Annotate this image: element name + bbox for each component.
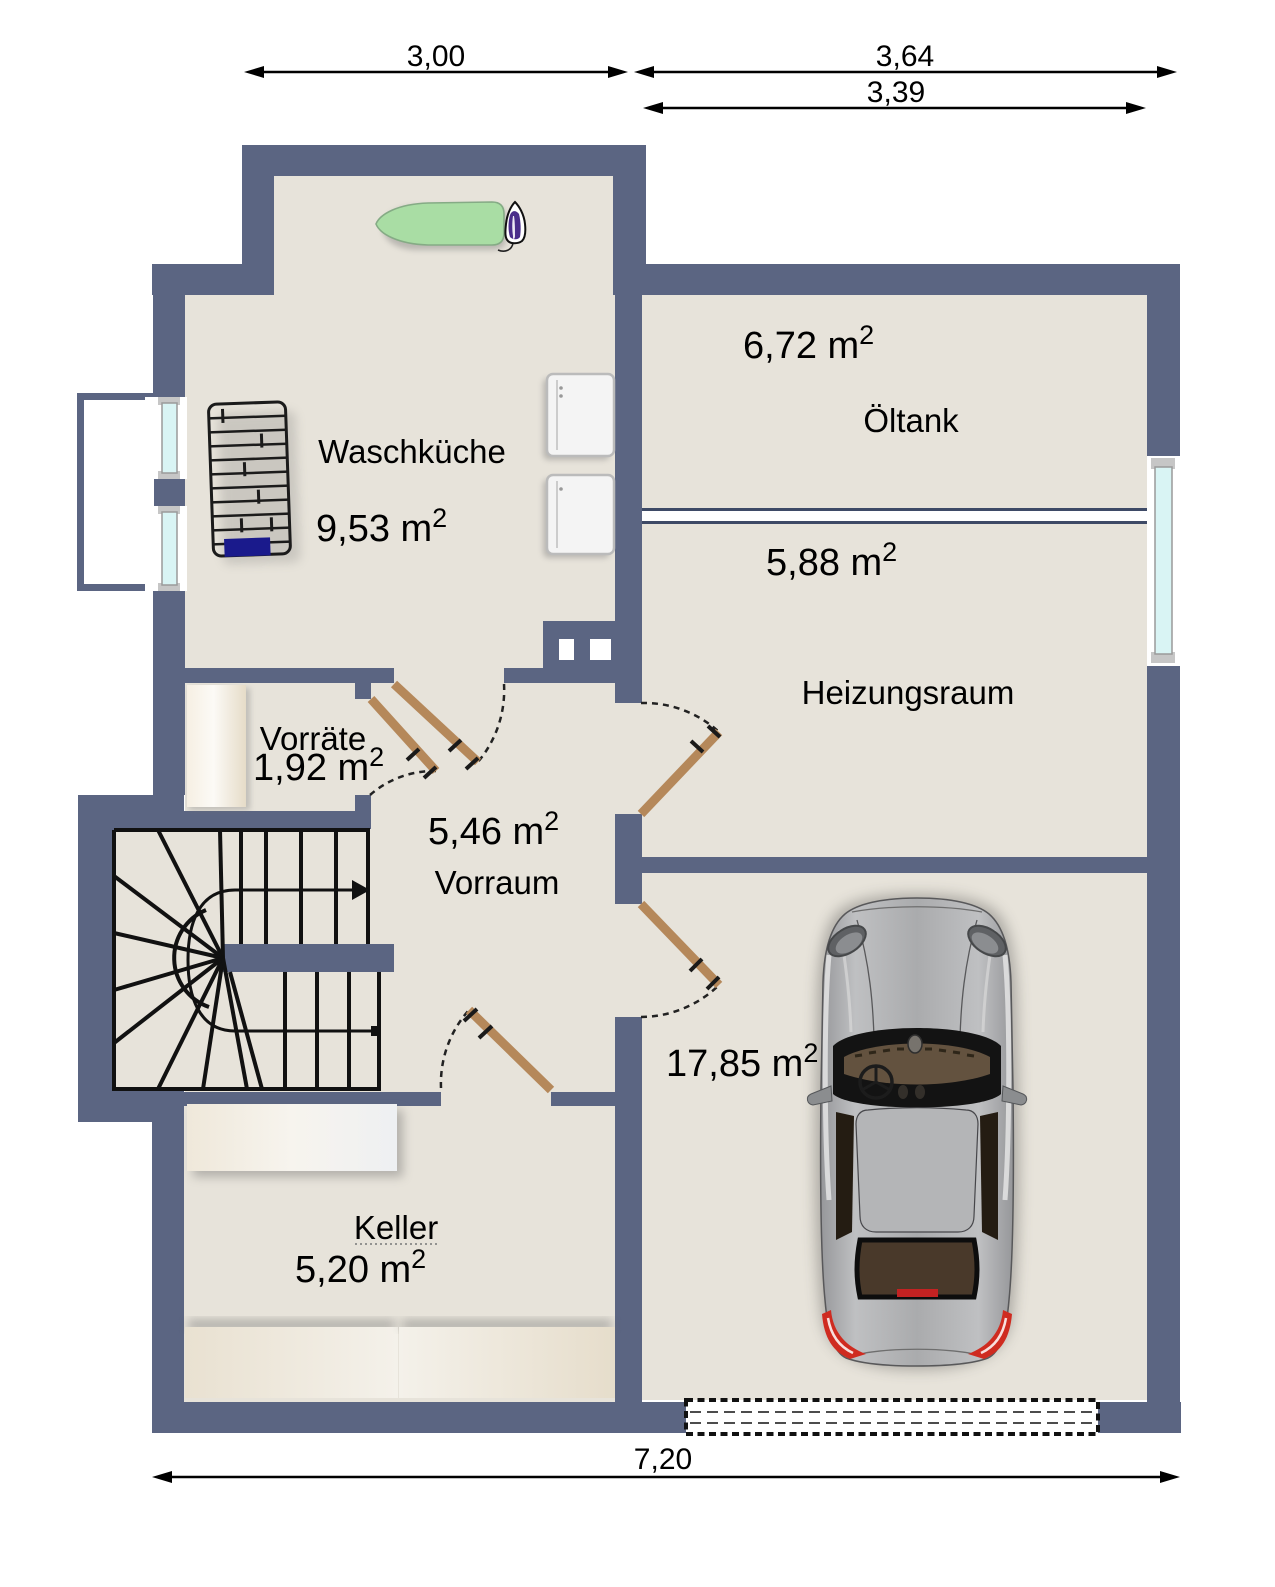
svg-text:3,64: 3,64: [876, 40, 934, 73]
svg-text:5,88 m2: 5,88 m2: [766, 537, 897, 584]
svg-text:6,72 m2: 6,72 m2: [743, 320, 874, 367]
svg-text:3,00: 3,00: [407, 40, 465, 73]
svg-text:Keller: Keller: [354, 1209, 438, 1246]
svg-text:Öltank: Öltank: [863, 402, 959, 439]
svg-text:3,39: 3,39: [867, 76, 925, 109]
svg-text:9,53 m2: 9,53 m2: [316, 503, 447, 550]
svg-text:Heizungsraum: Heizungsraum: [802, 674, 1015, 711]
svg-text:5,46 m2: 5,46 m2: [428, 806, 559, 853]
svg-text:5,20 m2: 5,20 m2: [295, 1244, 426, 1291]
svg-text:7,20: 7,20: [634, 1443, 692, 1476]
svg-text:Waschküche: Waschküche: [318, 433, 506, 470]
svg-text:17,85 m2: 17,85 m2: [666, 1038, 818, 1085]
svg-text:1,92 m2: 1,92 m2: [253, 742, 384, 789]
svg-text:Vorraum: Vorraum: [435, 864, 560, 901]
